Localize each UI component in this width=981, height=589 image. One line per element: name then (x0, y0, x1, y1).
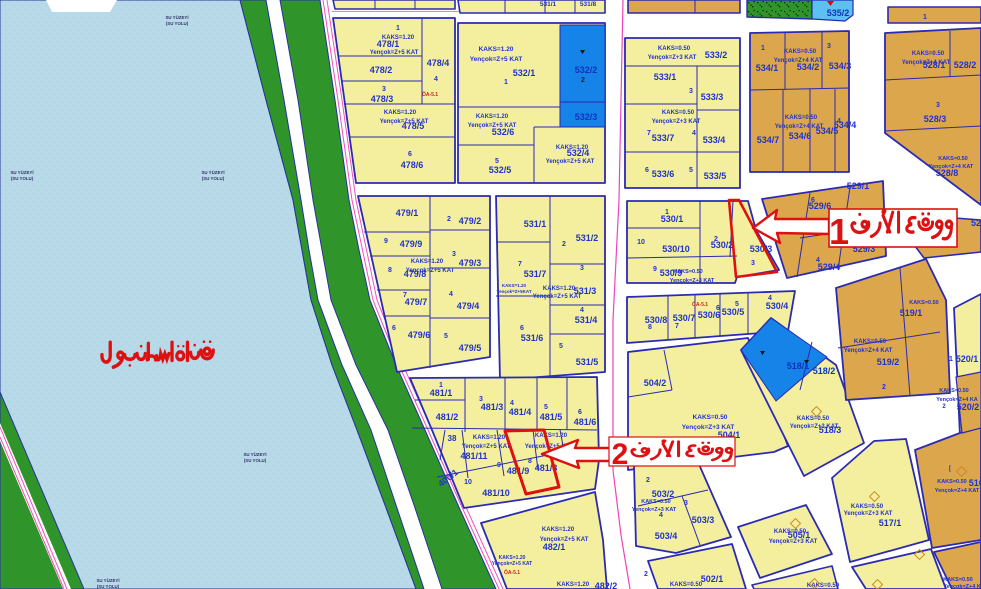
svg-text:8: 8 (388, 267, 392, 274)
svg-text:529/1: 529/1 (847, 181, 870, 191)
svg-text:6: 6 (645, 167, 649, 174)
svg-text:478/2: 478/2 (370, 65, 393, 75)
svg-text:1: 1 (761, 45, 765, 52)
svg-text:8: 8 (648, 324, 652, 331)
svg-text:7: 7 (675, 323, 679, 330)
svg-text:(SU YOLU): (SU YOLU) (97, 584, 120, 589)
svg-text:528/8: 528/8 (936, 168, 959, 178)
svg-text:5: 5 (689, 167, 693, 174)
svg-text:534/7: 534/7 (757, 135, 780, 145)
svg-text:Yençok=Z+5 KAT: Yençok=Z+5 KAT (492, 561, 532, 567)
svg-text:519/2: 519/2 (877, 357, 900, 367)
svg-text:(SU YOLU): (SU YOLU) (202, 176, 225, 181)
svg-text:535/2: 535/2 (827, 8, 850, 18)
svg-text:531/1: 531/1 (540, 1, 557, 8)
svg-text:KAKS=0.50: KAKS=0.50 (939, 388, 969, 394)
svg-text:481/11: 481/11 (460, 451, 487, 461)
svg-text:504/2: 504/2 (644, 378, 667, 388)
svg-text:KAKS=1.20: KAKS=1.20 (384, 110, 417, 116)
svg-text:531/7: 531/7 (524, 269, 547, 279)
svg-text:KAKS=0.50: KAKS=0.50 (658, 46, 691, 52)
svg-text:7: 7 (647, 130, 651, 137)
svg-text:531/2: 531/2 (576, 233, 599, 243)
svg-text:517/1: 517/1 (879, 518, 902, 528)
svg-text:516/1: 516/1 (969, 478, 981, 488)
svg-text:503/2: 503/2 (652, 489, 675, 499)
svg-text:530/3: 530/3 (750, 244, 773, 254)
svg-text:503/4: 503/4 (655, 531, 678, 541)
svg-text:3: 3 (382, 86, 386, 93)
svg-text:(SU YOLU): (SU YOLU) (166, 21, 189, 26)
svg-text:478/4: 478/4 (427, 58, 450, 68)
svg-text:518/2: 518/2 (813, 366, 836, 376)
svg-text:4: 4 (659, 512, 663, 519)
svg-text:KAKS=0.50: KAKS=0.50 (937, 479, 967, 485)
svg-text:SU YÜZEYİ: SU YÜZEYİ (165, 15, 188, 20)
svg-text:479/3: 479/3 (459, 258, 482, 268)
svg-text:6: 6 (408, 151, 412, 158)
svg-text:530/5: 530/5 (722, 307, 745, 317)
svg-text:SU YÜZEYİ: SU YÜZEYİ (243, 452, 266, 457)
svg-text:4: 4 (768, 295, 772, 302)
svg-text:518/3: 518/3 (819, 425, 842, 435)
svg-text:KAKS=0.50: KAKS=0.50 (938, 156, 968, 162)
svg-text:532/2: 532/2 (575, 65, 598, 75)
svg-text:4: 4 (434, 76, 438, 83)
svg-text:(SU YOLU): (SU YOLU) (244, 458, 267, 463)
svg-text:10: 10 (464, 479, 472, 486)
svg-text:KAKS=0.50: KAKS=0.50 (785, 115, 818, 121)
svg-text:5: 5 (495, 158, 499, 165)
svg-text:KAKS=0.50: KAKS=0.50 (854, 339, 887, 345)
svg-text:532/3: 532/3 (575, 112, 598, 122)
svg-text:38: 38 (448, 434, 457, 443)
svg-text:479/4: 479/4 (457, 301, 480, 311)
svg-text:3: 3 (936, 102, 940, 109)
svg-text:478/1: 478/1 (377, 39, 400, 49)
svg-text:532/5: 532/5 (489, 165, 512, 175)
svg-text:530/10: 530/10 (662, 244, 690, 254)
svg-text:KAKS=0.50: KAKS=0.50 (693, 414, 728, 421)
svg-text:Yençok=Z+5 KAT: Yençok=Z+5 KAT (470, 56, 523, 63)
svg-text:KAKS=0.50: KAKS=0.50 (912, 51, 945, 57)
svg-text:7: 7 (518, 261, 522, 268)
svg-text:530/4: 530/4 (766, 301, 789, 311)
svg-text:(SU YOLU): (SU YOLU) (11, 176, 34, 181)
svg-text:528/1: 528/1 (923, 60, 946, 70)
svg-text:3: 3 (580, 265, 584, 272)
svg-text:KAKS=1.20: KAKS=1.20 (557, 582, 590, 588)
svg-text:534/4: 534/4 (834, 120, 857, 130)
svg-text:KAKS=1.20: KAKS=1.20 (543, 286, 576, 292)
svg-text:529/6: 529/6 (809, 201, 832, 211)
svg-text:481/3: 481/3 (481, 402, 504, 412)
svg-text:KAKS=0.50: KAKS=0.50 (797, 416, 830, 422)
svg-text:481/6: 481/6 (574, 417, 597, 427)
svg-text:Yençok=Z+5 KAT: Yençok=Z+5 KAT (370, 50, 419, 56)
svg-text:10: 10 (637, 239, 645, 246)
svg-text:Yençok=Z+4 KAT: Yençok=Z+4 KAT (844, 348, 893, 354)
svg-text:531/8: 531/8 (580, 1, 597, 8)
svg-text:Yençok=Z+5 KAT: Yençok=Z+5 KAT (546, 159, 595, 165)
svg-text:479/7: 479/7 (405, 297, 428, 307)
svg-text:Yençok=Z+5 KAT: Yençok=Z+5 KAT (406, 268, 455, 274)
svg-text:ÖA-5.1: ÖA-5.1 (692, 301, 708, 308)
svg-text:502/1: 502/1 (701, 574, 724, 584)
svg-text:Yençok=Z+3 KAT: Yençok=Z+3 KAT (670, 278, 715, 284)
svg-text:481/10: 481/10 (482, 488, 510, 498)
svg-text:532/6: 532/6 (492, 127, 515, 137)
svg-text:1: 1 (949, 356, 953, 363)
svg-text:Yençok=Z+3 KAT: Yençok=Z+3 KAT (769, 539, 818, 545)
svg-text:2: 2 (581, 77, 585, 84)
svg-text:533/3: 533/3 (701, 92, 724, 102)
svg-text:KAKS=0.50: KAKS=0.50 (673, 269, 703, 275)
svg-text:3: 3 (751, 260, 755, 267)
svg-text:533/4: 533/4 (703, 135, 726, 145)
svg-text:KAKS=0.50: KAKS=0.50 (662, 110, 695, 116)
svg-text:519/1: 519/1 (900, 308, 923, 318)
svg-text:Yençok=Z+5KAT: Yençok=Z+5KAT (496, 289, 531, 294)
svg-text:534/3: 534/3 (829, 61, 852, 71)
svg-text:Yençok=Z+3 KAT: Yençok=Z+3 KAT (632, 507, 677, 513)
svg-text:533/5: 533/5 (704, 171, 727, 181)
svg-text:KAKS=0.50: KAKS=0.50 (851, 504, 884, 510)
svg-text:532/4: 532/4 (567, 148, 590, 158)
svg-text:478/6: 478/6 (401, 160, 424, 170)
svg-text:5: 5 (735, 301, 739, 308)
svg-text:KAKS=1.20: KAKS=1.20 (473, 435, 506, 441)
svg-text:SU YÜZEYİ: SU YÜZEYİ (10, 170, 33, 175)
svg-text:5: 5 (559, 343, 563, 350)
svg-text:4: 4 (449, 291, 453, 298)
svg-text:7: 7 (403, 292, 407, 299)
svg-text:531/1: 531/1 (524, 219, 547, 229)
svg-text:5: 5 (544, 404, 548, 411)
svg-text:518/1: 518/1 (787, 361, 810, 371)
svg-text:1: 1 (923, 14, 927, 21)
svg-text:479/2: 479/2 (459, 216, 482, 226)
svg-text:KAKS=0.50: KAKS=0.50 (641, 499, 671, 505)
svg-text:1: 1 (829, 211, 849, 252)
svg-text:533/6: 533/6 (652, 169, 675, 179)
svg-text:Yençok=Z+3 KAT: Yençok=Z+3 KAT (648, 55, 697, 61)
svg-text:481/4: 481/4 (509, 407, 532, 417)
svg-text:479/9: 479/9 (400, 239, 423, 249)
svg-text:528/2: 528/2 (954, 60, 977, 70)
svg-text:2: 2 (447, 216, 451, 223)
svg-text:533/7: 533/7 (652, 133, 675, 143)
svg-text:533/1: 533/1 (654, 72, 677, 82)
svg-text:KAKS=0.50: KAKS=0.50 (784, 49, 817, 55)
svg-text:4: 4 (510, 400, 514, 407)
svg-text:534/1: 534/1 (756, 63, 779, 73)
svg-text:SU YÜZEYİ: SU YÜZEYİ (96, 578, 119, 583)
svg-text:Yençok=Z+3 KAT: Yençok=Z+3 KAT (844, 511, 893, 517)
svg-text:478/5: 478/5 (402, 121, 425, 131)
svg-text:KAKS=1.20: KAKS=1.20 (479, 46, 514, 53)
svg-text:2: 2 (644, 571, 648, 578)
svg-text:KAKS=0.50: KAKS=0.50 (670, 582, 703, 588)
svg-text:Yençok=Z+5 KAT: Yençok=Z+5 KAT (462, 444, 511, 450)
svg-text:479/6: 479/6 (408, 330, 431, 340)
svg-text:KAKS=1.20: KAKS=1.20 (542, 527, 575, 533)
svg-text:533/2: 533/2 (705, 50, 728, 60)
svg-text:532/1: 532/1 (513, 68, 536, 78)
svg-text:481/5: 481/5 (540, 412, 563, 422)
svg-text:KAKS=1.20: KAKS=1.20 (476, 114, 509, 120)
svg-text:Yençok=Z+3 KAT: Yençok=Z+3 KAT (652, 119, 701, 125)
svg-text:479/5: 479/5 (459, 343, 482, 353)
svg-text:481/1: 481/1 (430, 388, 453, 398)
svg-text:9: 9 (653, 266, 657, 273)
svg-text:9: 9 (384, 238, 388, 245)
svg-text:534/6: 534/6 (789, 131, 812, 141)
svg-text:3: 3 (684, 500, 688, 507)
svg-text:6: 6 (392, 325, 396, 332)
svg-text:1: 1 (504, 79, 508, 86)
svg-text:2: 2 (612, 438, 629, 471)
svg-text:9: 9 (497, 462, 501, 469)
svg-text:SU YÜZEYİ: SU YÜZEYİ (201, 170, 224, 175)
svg-text:478/3: 478/3 (371, 94, 394, 104)
svg-text:Yençok=Z+4 KAT: Yençok=Z+4 KAT (935, 488, 980, 494)
svg-text:5: 5 (444, 333, 448, 340)
svg-text:534/2: 534/2 (797, 62, 820, 72)
svg-text:520/2: 520/2 (957, 402, 980, 412)
svg-text:Yençok=Z+4 K: Yençok=Z+4 K (943, 584, 981, 589)
svg-text:6: 6 (520, 325, 524, 332)
svg-text:530/1: 530/1 (661, 214, 684, 224)
svg-text:528/3: 528/3 (924, 114, 947, 124)
svg-text:[: [ (949, 466, 951, 472)
svg-text:531/4: 531/4 (575, 315, 598, 325)
svg-text:6: 6 (578, 409, 582, 416)
svg-text:4: 4 (692, 130, 696, 137)
svg-text:ÖA-5.1: ÖA-5.1 (422, 91, 438, 98)
svg-text:KAKS=0.50: KAKS=0.50 (909, 300, 939, 306)
svg-text:KAKS=0.50: KAKS=0.50 (943, 577, 973, 583)
svg-text:KAKS=1.20: KAKS=1.20 (411, 259, 444, 265)
svg-text:531/6: 531/6 (521, 333, 544, 343)
svg-text:3: 3 (827, 43, 831, 50)
svg-text:8: 8 (528, 458, 532, 465)
svg-text:3: 3 (689, 88, 693, 95)
svg-text:481/2: 481/2 (436, 412, 459, 422)
svg-text:4: 4 (580, 307, 584, 314)
svg-text:531/5: 531/5 (576, 357, 599, 367)
svg-text:530/2: 530/2 (711, 240, 734, 250)
svg-text:503/3: 503/3 (692, 515, 715, 525)
svg-text:530/7: 530/7 (673, 313, 696, 323)
svg-text:529/4: 529/4 (818, 262, 841, 272)
svg-text:Yençok=Z+5 KAT: Yençok=Z+5 KAT (533, 294, 582, 300)
svg-text:2: 2 (562, 241, 566, 248)
svg-text:482/2: 482/2 (595, 581, 618, 589)
svg-text:2: 2 (646, 477, 650, 484)
svg-text:3: 3 (452, 251, 456, 258)
svg-text:ÖA-5.1: ÖA-5.1 (504, 569, 520, 576)
svg-text:482/1: 482/1 (543, 542, 566, 552)
svg-text:520/1: 520/1 (956, 354, 979, 364)
svg-text:6: 6 (716, 305, 720, 312)
svg-text:KAKS=1.20: KAKS=1.20 (535, 433, 568, 439)
svg-text:KAKS=1.20: KAKS=1.20 (502, 283, 527, 288)
svg-text:52: 52 (971, 218, 981, 228)
svg-text:479/1: 479/1 (396, 208, 419, 218)
svg-text:1: 1 (396, 25, 400, 32)
svg-text:2: 2 (882, 384, 886, 391)
